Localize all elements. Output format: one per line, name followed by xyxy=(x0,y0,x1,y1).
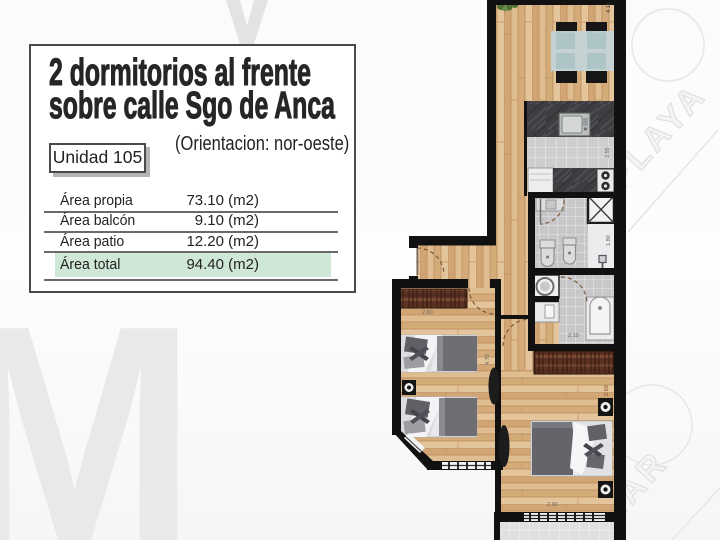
svg-text:2.55: 2.55 xyxy=(605,147,611,158)
svg-text:4.70: 4.70 xyxy=(485,354,491,365)
svg-text:2.80: 2.80 xyxy=(422,310,433,316)
svg-text:2.90: 2.90 xyxy=(547,502,558,508)
svg-text:2.10: 2.10 xyxy=(568,333,579,339)
svg-text:4.15: 4.15 xyxy=(606,2,612,13)
svg-text:1.80: 1.80 xyxy=(606,235,612,246)
svg-text:2.60: 2.60 xyxy=(604,385,610,396)
